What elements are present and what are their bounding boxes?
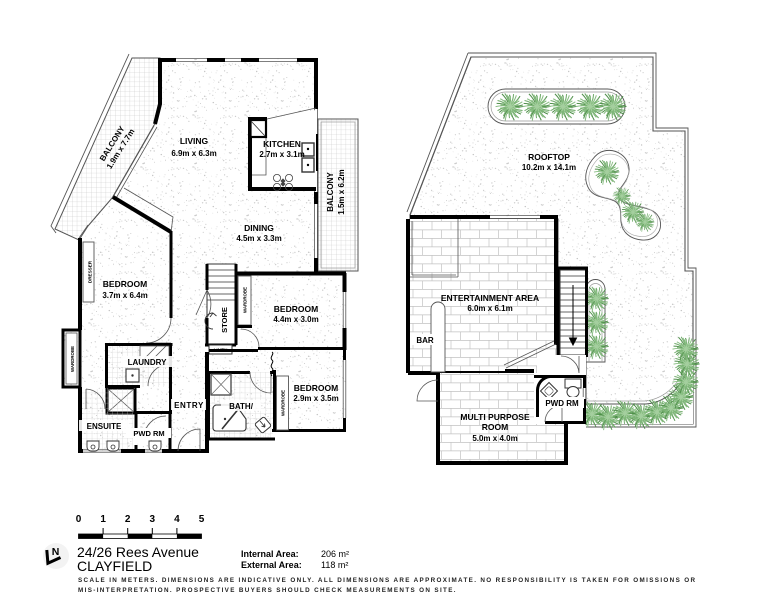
svg-text:PWD RM: PWD RM [545,399,579,408]
svg-text:ENTERTAINMENT AREA: ENTERTAINMENT AREA [441,293,539,303]
svg-text:BATH/: BATH/ [229,402,254,411]
svg-text:WARDROBE: WARDROBE [280,390,285,416]
svg-text:1: 1 [100,514,106,525]
svg-text:BEDROOM: BEDROOM [274,304,318,314]
svg-text:206 m²: 206 m² [321,549,349,559]
svg-text:2.7m x 3.1m: 2.7m x 3.1m [259,150,304,159]
svg-text:WARDROBE: WARDROBE [70,346,75,372]
svg-text:2.9m x 3.5m: 2.9m x 3.5m [293,394,338,403]
svg-text:N: N [52,546,60,558]
svg-text:MULTI PURPOSE: MULTI PURPOSE [460,412,530,422]
svg-text:ROOFTOP: ROOFTOP [528,152,570,162]
svg-text:3: 3 [150,514,156,525]
svg-text:STORE: STORE [220,307,229,333]
svg-text:LAUNDRY: LAUNDRY [128,358,167,367]
svg-text:ENTRY: ENTRY [174,401,204,410]
svg-text:4: 4 [174,514,180,525]
svg-text:ROOM: ROOM [482,422,508,432]
svg-text:0: 0 [76,514,82,525]
svg-text:External Area:: External Area: [241,560,302,570]
svg-text:6.0m x 6.1m: 6.0m x 6.1m [467,304,512,313]
svg-text:Internal Area:: Internal Area: [241,549,299,559]
svg-text:2: 2 [125,514,131,525]
svg-text:MIS-INTERPRETATION. PROSPECTIV: MIS-INTERPRETATION. PROSPECTIVE BUYERS S… [78,587,457,594]
svg-text:4.4m x 3.0m: 4.4m x 3.0m [273,315,318,324]
svg-text:4.5m x 3.3m: 4.5m x 3.3m [236,234,281,243]
svg-text:BEDROOM: BEDROOM [103,279,147,289]
svg-text:5: 5 [199,514,205,525]
svg-text:LIVING: LIVING [180,136,209,146]
svg-text:WARDROBE: WARDROBE [242,287,247,313]
svg-text:DRESSER: DRESSER [87,260,92,283]
svg-text:CLAYFIELD: CLAYFIELD [77,558,152,574]
svg-text:10.2m x 14.1m: 10.2m x 14.1m [522,163,576,172]
svg-text:SCALE IN METERS. DIMENSIONS AR: SCALE IN METERS. DIMENSIONS ARE INDICATI… [78,577,696,584]
svg-text:3.7m x 6.4m: 3.7m x 6.4m [102,291,147,300]
svg-text:PWD RM: PWD RM [133,429,164,438]
svg-text:BALCONY: BALCONY [326,172,335,212]
svg-text:118 m²: 118 m² [321,560,348,570]
svg-text:6.9m x 6.3m: 6.9m x 6.3m [171,149,216,158]
svg-text:ENSUITE: ENSUITE [87,422,122,431]
svg-text:BAR: BAR [416,336,434,345]
svg-text:BEDROOM: BEDROOM [294,383,338,393]
svg-text:KITCHEN: KITCHEN [263,139,301,149]
svg-text:DINING: DINING [244,223,274,233]
svg-text:1.5m x 6.2m: 1.5m x 6.2m [337,169,346,214]
svg-text:5.0m x 4.0m: 5.0m x 4.0m [472,434,517,443]
